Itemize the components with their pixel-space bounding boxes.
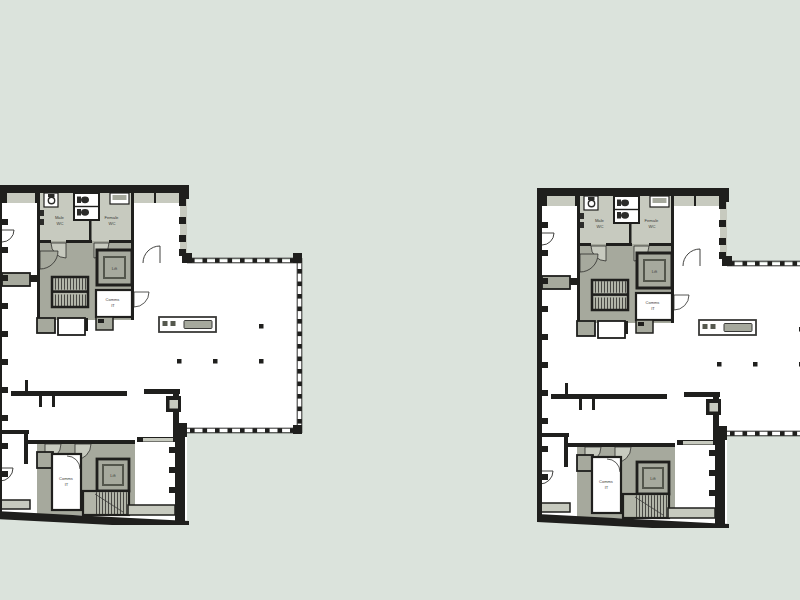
canvas-background: Male WC Female WC Lift [0, 0, 800, 600]
floor-plan-right [537, 188, 800, 528]
floor-plan-left [0, 185, 307, 525]
